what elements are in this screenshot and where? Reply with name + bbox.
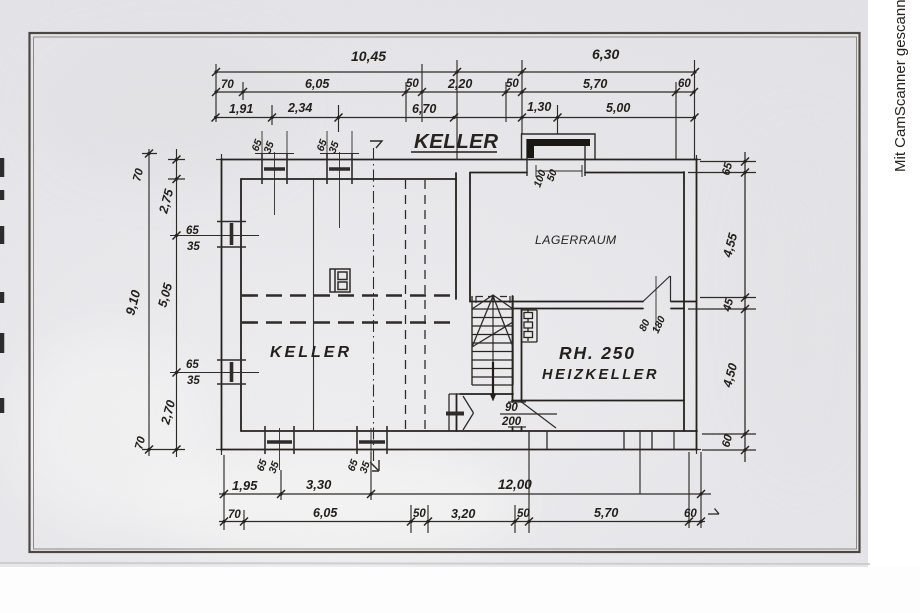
svg-text:1,91: 1,91 <box>229 102 253 116</box>
svg-text:50: 50 <box>413 508 426 520</box>
svg-text:65: 65 <box>186 225 199 237</box>
svg-text:12,00: 12,00 <box>498 477 532 492</box>
svg-text:60: 60 <box>684 508 697 520</box>
svg-text:1,30: 1,30 <box>527 100 551 114</box>
svg-text:200: 200 <box>501 416 522 428</box>
svg-text:35: 35 <box>187 375 200 387</box>
svg-text:5,70: 5,70 <box>583 77 607 91</box>
svg-text:65: 65 <box>186 359 199 371</box>
svg-text:KELLER: KELLER <box>414 130 498 153</box>
svg-text:60: 60 <box>678 78 691 90</box>
svg-text:5,00: 5,00 <box>606 101 630 115</box>
svg-text:35: 35 <box>187 241 200 253</box>
svg-text:50: 50 <box>506 78 519 90</box>
svg-text:6,05: 6,05 <box>313 506 338 520</box>
svg-text:70: 70 <box>228 509 241 521</box>
svg-text:KELLER: KELLER <box>270 344 352 361</box>
svg-text:70: 70 <box>221 79 234 91</box>
svg-text:50: 50 <box>517 508 530 520</box>
svg-text:90: 90 <box>505 402 518 414</box>
svg-text:10,45: 10,45 <box>351 48 386 64</box>
svg-text:LAGERRAUM: LAGERRAUM <box>535 233 617 247</box>
svg-text:3,30: 3,30 <box>306 477 332 492</box>
svg-text:3,20: 3,20 <box>451 507 475 521</box>
svg-text:2,34: 2,34 <box>287 101 312 115</box>
svg-text:6,05: 6,05 <box>305 77 330 91</box>
svg-text:HEIZKELLER: HEIZKELLER <box>542 367 659 383</box>
svg-text:5,70: 5,70 <box>594 506 618 520</box>
svg-text:6,70: 6,70 <box>412 102 436 116</box>
svg-text:6,30: 6,30 <box>592 46 619 62</box>
svg-text:Mit CamScanner gescannt: Mit CamScanner gescannt <box>892 0 909 172</box>
svg-text:1,95: 1,95 <box>232 478 258 493</box>
svg-text:50: 50 <box>406 78 419 90</box>
svg-text:RH. 250: RH. 250 <box>559 343 636 363</box>
svg-text:2,20: 2,20 <box>447 77 472 91</box>
